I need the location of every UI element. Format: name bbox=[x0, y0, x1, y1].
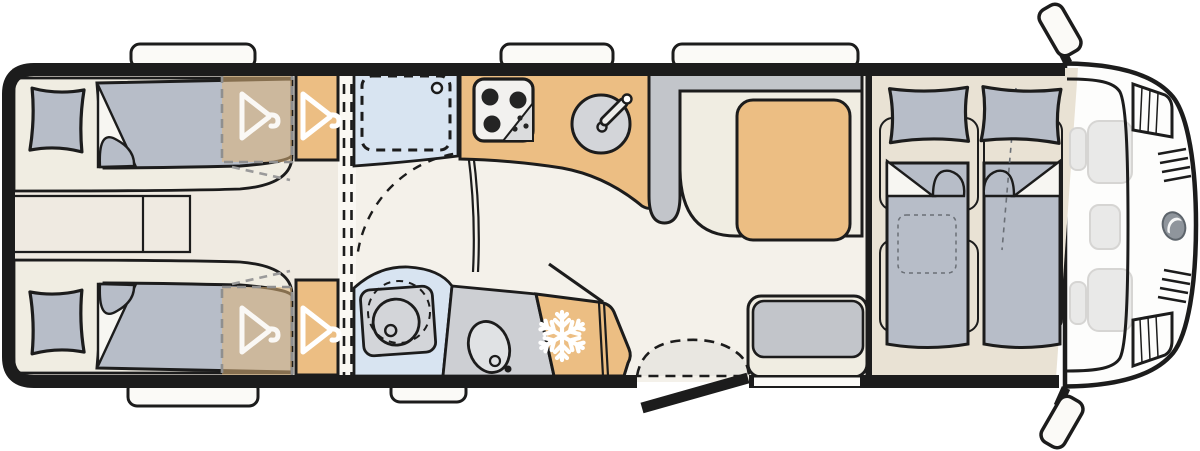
toilet-room bbox=[354, 267, 452, 376]
faucet-icon bbox=[623, 95, 632, 104]
pillow bbox=[30, 88, 84, 152]
drain-icon bbox=[432, 83, 442, 93]
travel-bench-cushion bbox=[753, 301, 863, 357]
toilet-icon bbox=[360, 286, 436, 357]
burner-icon bbox=[482, 89, 499, 106]
snowflake-icon bbox=[538, 312, 587, 360]
entry-door-open bbox=[642, 378, 748, 408]
shower bbox=[354, 70, 458, 166]
drain-icon bbox=[490, 356, 500, 366]
cab-bed-blanket bbox=[887, 161, 968, 348]
pillow bbox=[981, 87, 1061, 144]
wardrobe-ghost bbox=[222, 66, 292, 162]
cab-seat-headrest bbox=[1070, 128, 1086, 170]
floorplan-canvas bbox=[0, 0, 1200, 451]
motorhome-floorplan bbox=[0, 0, 1200, 451]
pillow bbox=[890, 87, 969, 142]
burner-icon bbox=[510, 92, 527, 109]
cab-seat-headrest bbox=[1070, 282, 1086, 324]
bulkhead bbox=[866, 63, 873, 382]
bench-window-slot bbox=[754, 378, 860, 387]
hob-icon bbox=[474, 79, 533, 141]
side-mirror bbox=[1038, 388, 1087, 451]
cab-console-ghost bbox=[1090, 205, 1120, 249]
sink-icon bbox=[572, 95, 632, 154]
pillow bbox=[30, 290, 84, 354]
dinette-table bbox=[737, 100, 850, 240]
side-mirror bbox=[1036, 1, 1085, 63]
burner-icon bbox=[484, 116, 501, 133]
wardrobe-ghost bbox=[222, 287, 292, 380]
travel-bench bbox=[748, 296, 867, 377]
